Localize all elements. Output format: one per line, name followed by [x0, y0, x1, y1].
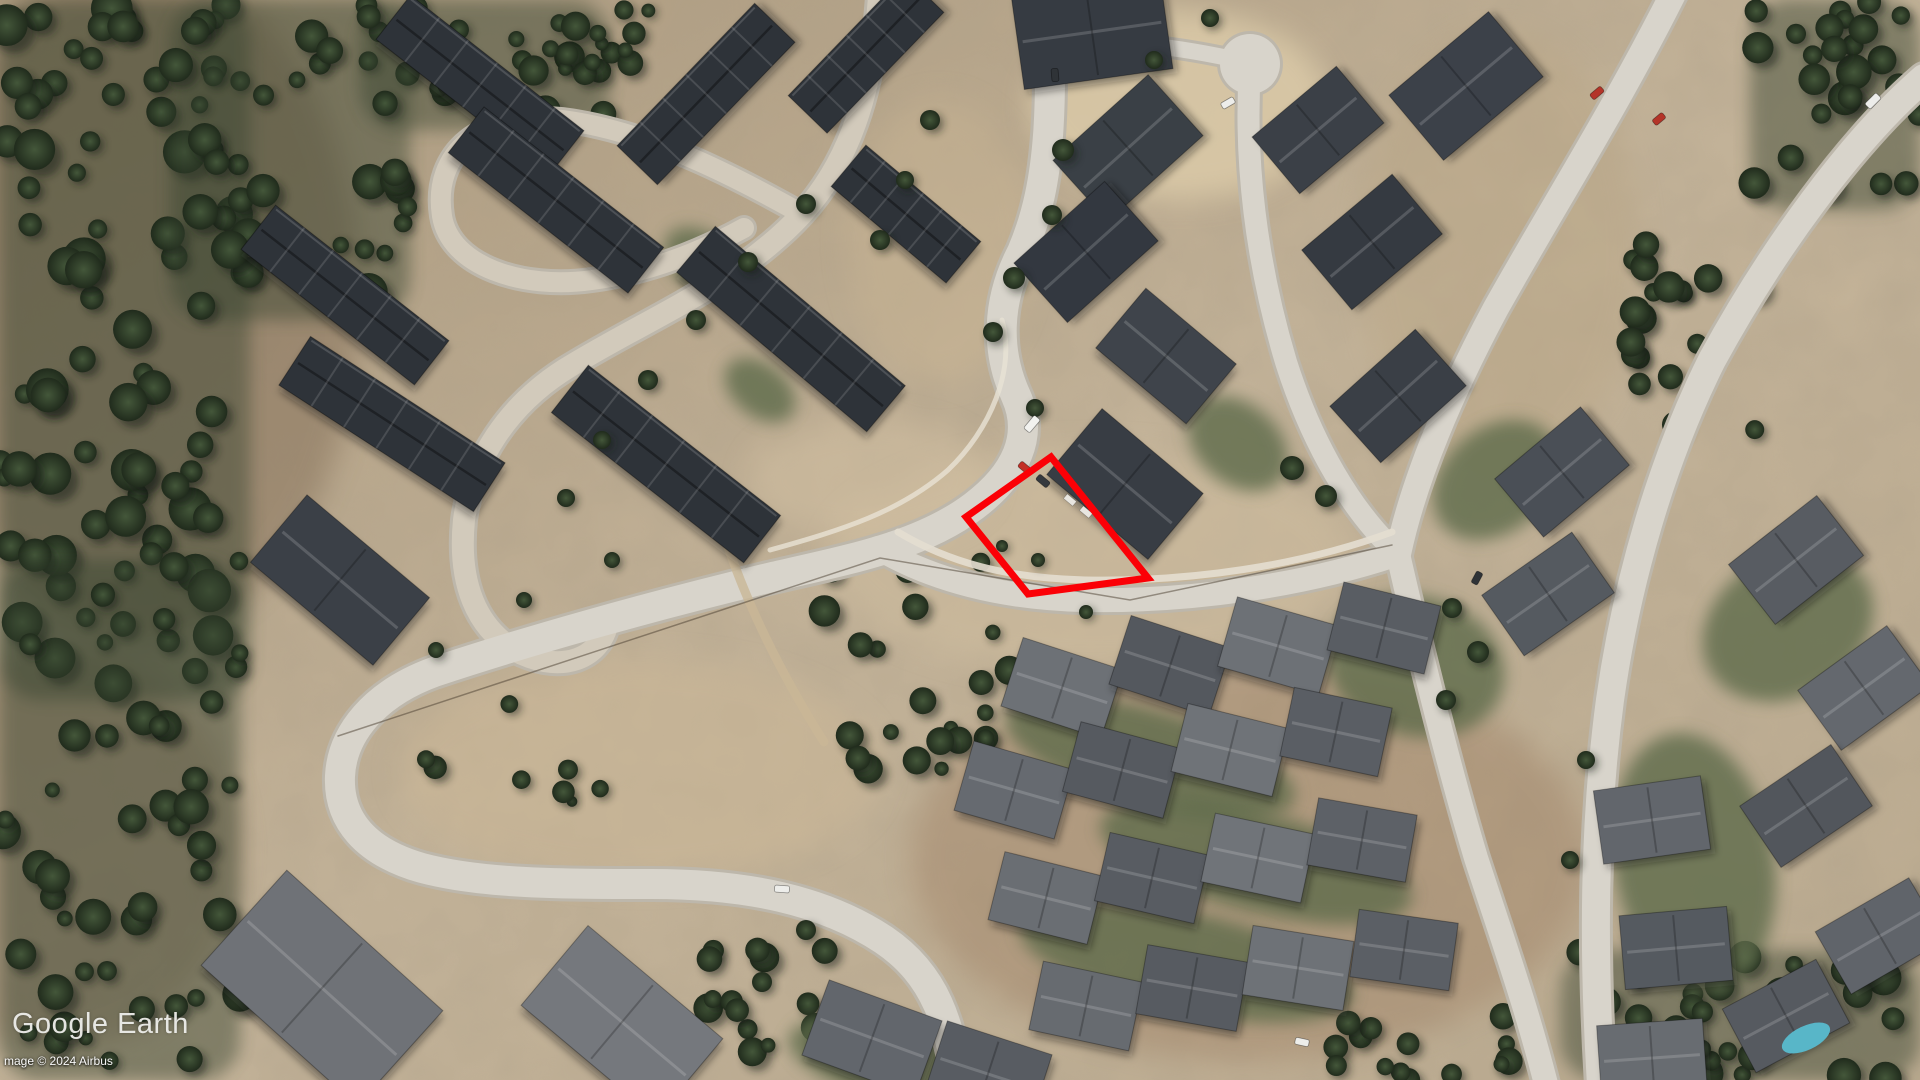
aerial-imagery: [0, 0, 1920, 1080]
house-roof: [1593, 776, 1710, 864]
house-roof: [1619, 906, 1733, 989]
house-roof: [1350, 909, 1458, 990]
imagery-attribution: mage © 2024 Airbus: [4, 1054, 113, 1068]
car: [774, 885, 789, 893]
car: [1051, 68, 1059, 82]
google-earth-watermark: Google Earth: [12, 1008, 189, 1041]
map-viewport[interactable]: Google Earth mage © 2024 Airbus: [0, 0, 1920, 1080]
house-roof: [1597, 1018, 1708, 1080]
